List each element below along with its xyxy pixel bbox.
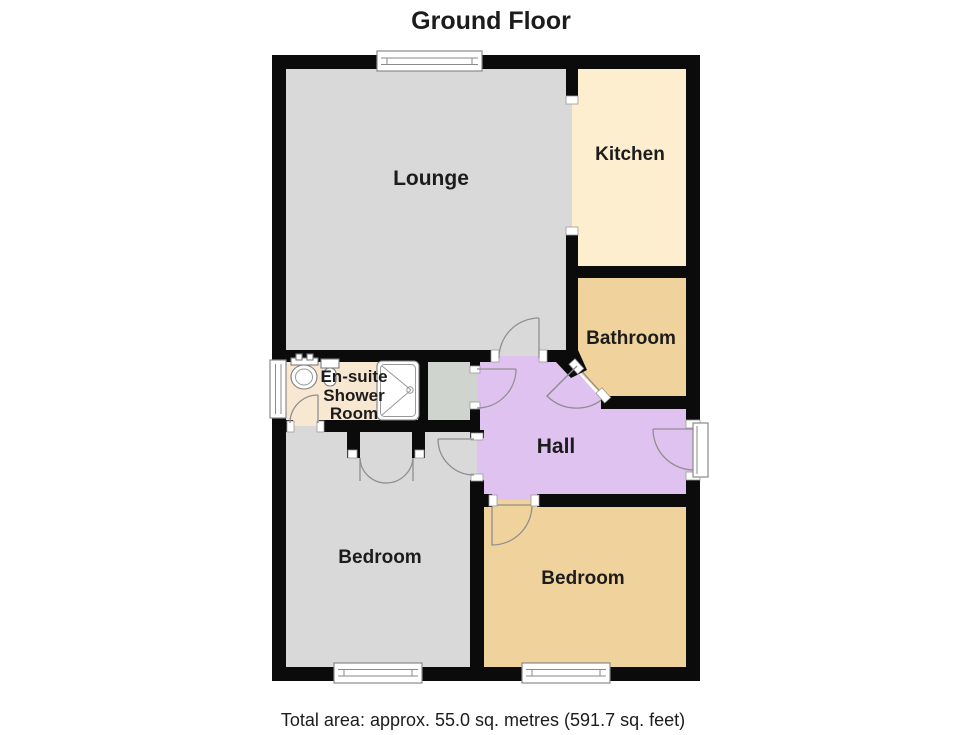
bathroom-label: Bathroom <box>586 328 676 349</box>
ensuite-label-line2: Shower <box>323 386 385 405</box>
jamb-kitchen-top <box>566 96 578 104</box>
lounge-label: Lounge <box>393 167 469 190</box>
entrance-door-panel <box>693 423 708 477</box>
lounge-window <box>377 51 482 71</box>
wall-cupboard-right-lower <box>470 408 480 420</box>
outer-wall-top <box>272 55 700 69</box>
jamb-wardrobe-right <box>415 450 424 458</box>
total-area-text: Total area: approx. 55.0 sq. metres (591… <box>281 710 685 730</box>
cupboard-floor <box>423 356 477 426</box>
wall-bedrooms-divider <box>470 480 484 667</box>
ensuite-window <box>270 360 286 418</box>
jamb-bedroom-right-right <box>531 495 539 506</box>
hall-label: Hall <box>537 435 576 458</box>
wall-bathroom-bottom <box>601 396 686 409</box>
jamb-lounge-left <box>491 350 499 362</box>
page-title: Ground Floor <box>411 7 571 35</box>
ensuite-label-line3: Room <box>330 404 378 423</box>
kitchen-floor <box>572 62 693 272</box>
ensuite-label-line1: En-suite <box>320 367 387 386</box>
lounge-floor <box>279 62 572 356</box>
jamb-bedroom-right-left <box>489 495 497 506</box>
outer-wall-right-upper <box>686 55 700 428</box>
wall-kitchen-bathroom <box>566 266 700 278</box>
bedroom-left-label: Bedroom <box>338 547 421 568</box>
bedroom-right-label: Bedroom <box>541 568 624 589</box>
bedroom-left-window <box>334 663 422 683</box>
jamb-lounge-right <box>539 350 547 362</box>
jamb-wardrobe-left <box>348 450 357 458</box>
kitchen-label: Kitchen <box>595 144 665 165</box>
jamb-kitchen-bottom <box>566 227 578 235</box>
wall-hall-bottom <box>537 494 690 507</box>
wall-bathroom-left <box>566 278 578 358</box>
floor-plan: Ground Floor <box>0 0 980 735</box>
bedroom-right-window <box>522 663 610 683</box>
sink <box>291 354 318 389</box>
